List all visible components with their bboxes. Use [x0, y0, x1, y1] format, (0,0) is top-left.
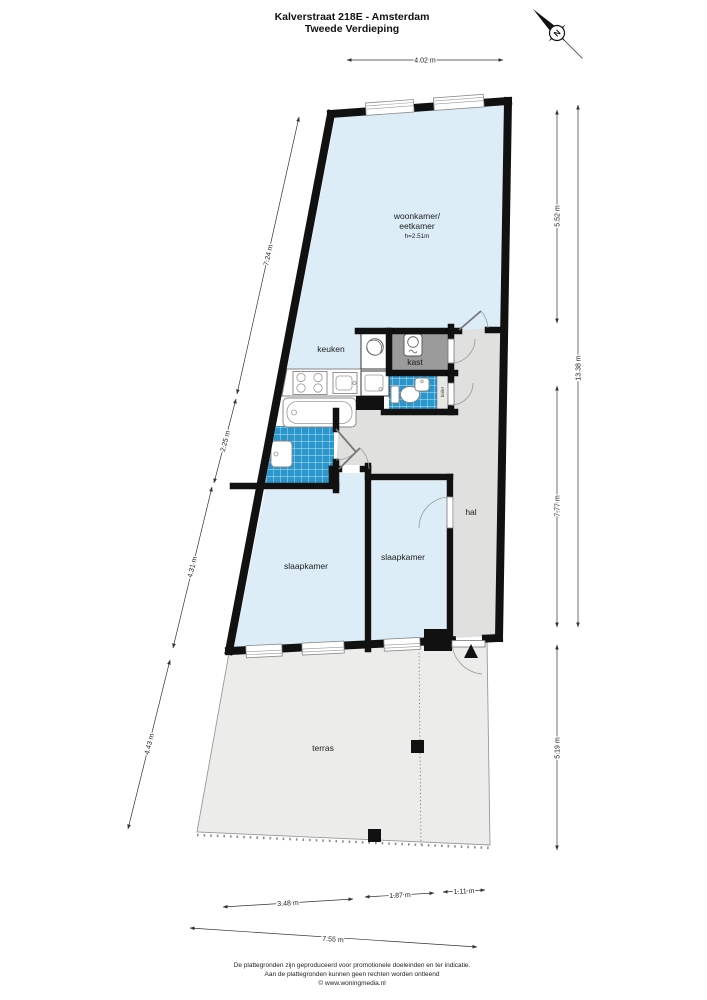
floorplan-page: Kalverstraat 218E - Amsterdam Tweede Ver… [0, 0, 707, 1000]
room-slaapkamer-right-floor [372, 481, 447, 645]
compass-north-icon: N [524, 0, 590, 66]
footer-credit: © www.woningmedia.nl [318, 979, 386, 987]
footer-disclaimer-line1: De plattegronden zijn geproduceerd voor … [234, 962, 471, 969]
dimension-label-left-mid: 2.25 m [220, 430, 232, 453]
terrace-floor [197, 641, 490, 845]
dimension-label-right-total: 13.38 m [576, 355, 583, 380]
page-title: Kalverstraat 218E - Amsterdam [275, 11, 430, 23]
page-subtitle: Tweede Verdieping [305, 23, 399, 35]
footer-disclaimer-line2: Aan de plattegronden kunnen geen rechten… [265, 971, 440, 978]
room-label-slaapkamer-right: slaapkamer [381, 552, 425, 562]
dimension-label-left-upper: 7.24 m [263, 244, 275, 267]
terrace-post [368, 829, 381, 842]
duct-column [424, 629, 452, 651]
terrace-area [197, 641, 490, 848]
door-slaapkamer-right-leaf [447, 497, 453, 528]
room-label-terras: terras [312, 743, 334, 753]
dimension-label-right-terras: 5.19 m [555, 737, 562, 759]
dimension-label-top: 4.02 m [414, 58, 436, 65]
dimension-label-left-terras: 4.43 m [144, 733, 156, 756]
room-label-height: h=2.51m [405, 233, 430, 240]
floorplan-canvas: Kalverstraat 218E - Amsterdam Tweede Ver… [0, 0, 707, 1000]
door-kast-leaf [448, 339, 454, 363]
door-terras-leaf [452, 641, 485, 648]
room-label-eetkamer: eetkamer [399, 221, 435, 231]
room-hal-floor [454, 327, 501, 638]
dimension-label-bottom-total: 7.55 m [322, 936, 344, 944]
dimension-label-right-woonkamer: 5.52 m [555, 205, 562, 227]
door-wc-leaf [448, 383, 454, 405]
room-label-boiler: boiler [440, 386, 445, 397]
terrace-post [411, 740, 424, 753]
room-label-slaapkamer-left: slaapkamer [284, 561, 328, 571]
footer: De plattegronden zijn geproduceerd voor … [234, 962, 471, 987]
dimension-label-left-lower: 4.31 m [187, 556, 199, 579]
wall-bath-stub [356, 396, 384, 410]
dimension-label-bottom-seg2: 1.87 m [389, 892, 411, 900]
room-label-hal: hal [465, 507, 476, 517]
window-bottom-1 [246, 644, 283, 658]
toilet-tank [391, 386, 399, 403]
dimension-label-right-hal: 7.77 m [555, 495, 562, 517]
window-bottom-2 [302, 641, 345, 655]
room-label-woonkamer: woonkamer/ [393, 211, 441, 221]
room-label-kast: kast [407, 357, 423, 367]
window-bottom-3 [384, 637, 421, 651]
dimension-label-bottom-seg3: 1.11 m [453, 888, 474, 896]
boiler-icon [404, 334, 422, 356]
kast-fixtures [404, 334, 422, 356]
room-label-keuken: keuken [317, 344, 345, 354]
dimension-label-bottom-seg1: 3.48 m [277, 900, 299, 908]
